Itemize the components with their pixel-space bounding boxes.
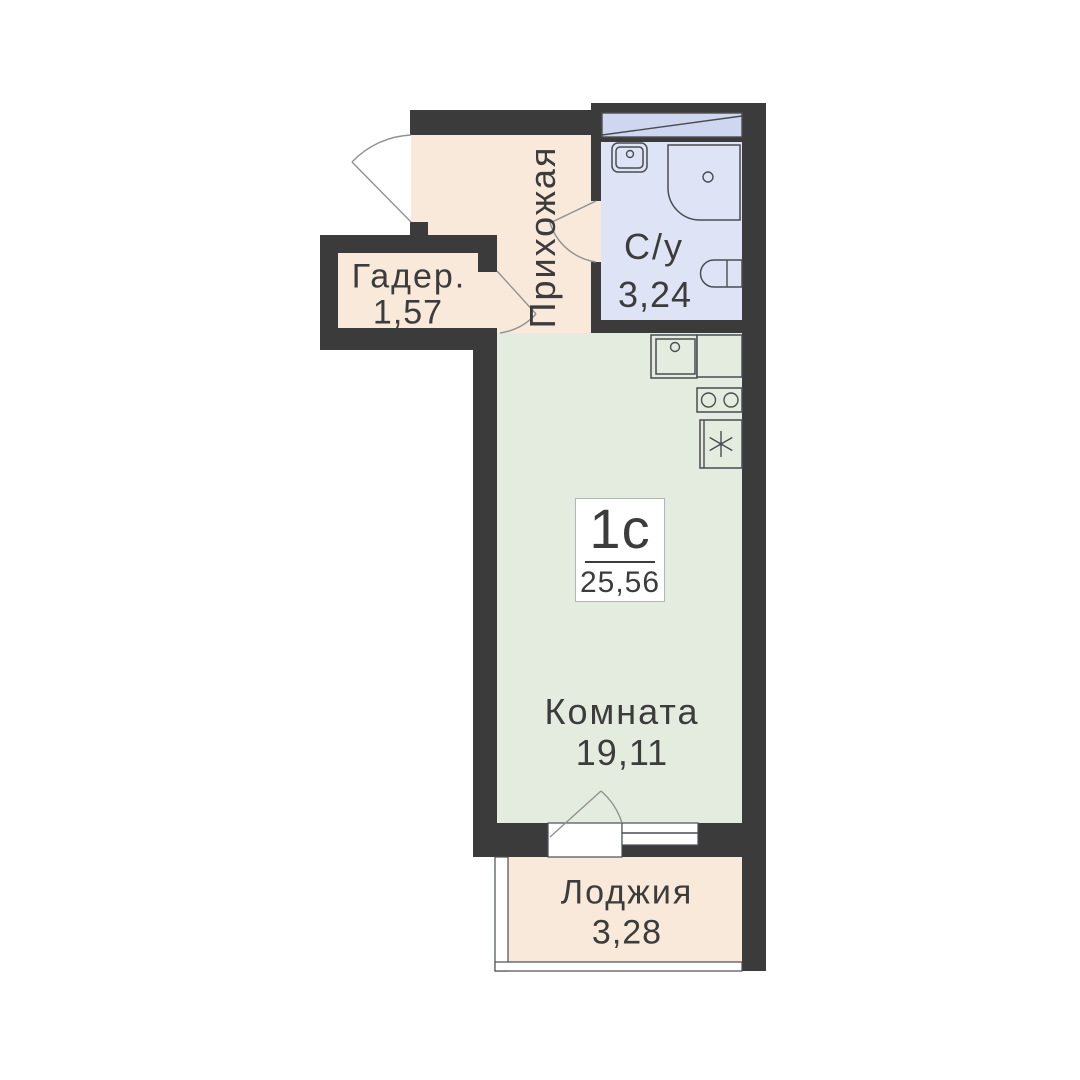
shower-icon (668, 145, 740, 220)
cooktop-icon (697, 388, 742, 412)
wall-room-left (473, 333, 497, 857)
fridge-icon (700, 420, 742, 468)
living-room-label: Комната (545, 691, 700, 733)
unit-total-area: 25,56 (580, 566, 660, 600)
kitchen-counter (697, 335, 742, 377)
loggia-area: 3,28 (592, 914, 662, 953)
wardrobe-label: Гадер. (352, 258, 467, 297)
wall-wardrobe-top (320, 235, 497, 253)
floor-plan: Гадер. 1,57 Прихожая С/у 3,24 Комната 19… (0, 0, 1080, 1080)
bathroom-doorway-floor (591, 201, 601, 262)
wardrobe-doorway-floor (478, 270, 497, 330)
kitchen-sink-icon (651, 335, 697, 378)
unit-type-label: 1с (589, 500, 650, 558)
window-opening (622, 823, 698, 845)
entry-door-swing (352, 135, 411, 222)
wall-hallway-top (410, 110, 601, 135)
wall-bathroom-left-upper (591, 135, 601, 201)
loggia-glazing-bottom (495, 962, 742, 971)
loggia-label: Лоджия (561, 874, 693, 913)
bathroom-label: С/у (624, 226, 684, 268)
living-room-area: 19,11 (576, 732, 668, 774)
toilet-icon (701, 260, 743, 287)
bath-sink-icon (612, 143, 647, 172)
wall-wardrobe-right-pillar (478, 253, 497, 272)
wall-bathroom-bottom (591, 320, 742, 333)
bathroom-area: 3,24 (618, 274, 692, 316)
hallway-label: Прихожая (522, 146, 564, 329)
wardrobe-area: 1,57 (373, 294, 443, 333)
unit-divider (585, 561, 655, 563)
loggia-glazing-left (495, 857, 508, 971)
vent-shaft (602, 113, 742, 137)
unit-info-box: 1с 25,56 (575, 498, 665, 602)
